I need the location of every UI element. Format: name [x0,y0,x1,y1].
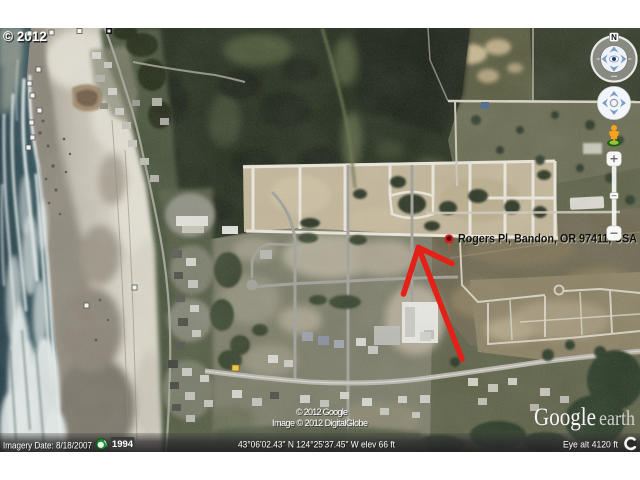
svg-text:Image © 2012 DigitalGlobe: Image © 2012 DigitalGlobe [272,418,368,428]
svg-text:Eye alt 4120 ft: Eye alt 4120 ft [563,440,618,451]
svg-text:© 2012 Google: © 2012 Google [296,407,348,417]
svg-text:earth: earth [599,406,635,430]
svg-text:Imagery Date: 8/18/2007: Imagery Date: 8/18/2007 [3,441,92,452]
svg-text:1994: 1994 [112,439,134,450]
svg-text:© 2012: © 2012 [3,29,47,44]
svg-text:Google: Google [534,404,596,431]
svg-text:43°06'02.43" N 124°25'37.45": 43°06'02.43" N 124°25'37.45" W elev 66 f… [238,440,395,451]
svg-text:N: N [611,33,617,42]
